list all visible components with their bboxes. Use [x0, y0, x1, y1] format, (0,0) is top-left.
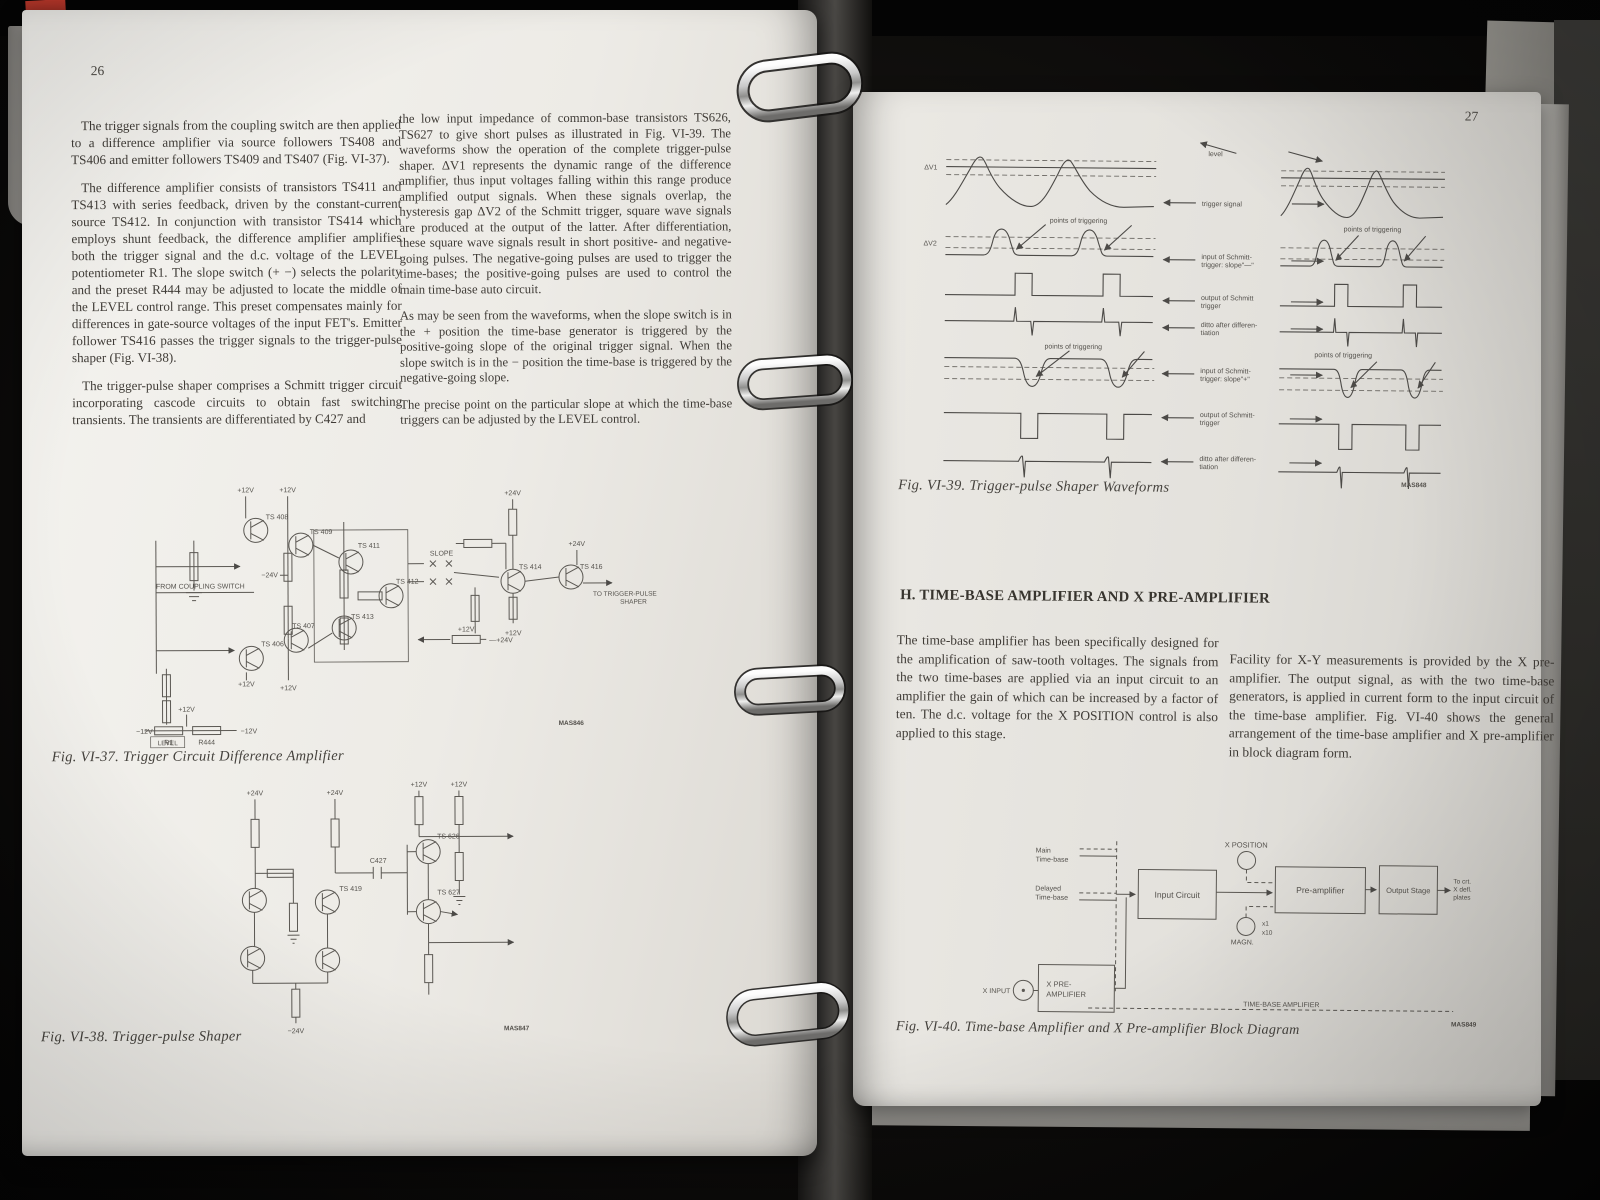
label-points-of-triggering: points of triggering [1344, 226, 1402, 234]
label-neg12: −12V [136, 729, 153, 736]
paragraph: The trigger-pulse shaper comprises a Sch… [72, 376, 402, 428]
label-ts419: TS 419 [339, 886, 362, 893]
label-supply: +12V [280, 685, 297, 692]
block-x-pre-amplifier-2: AMPLIFIER [1046, 990, 1086, 999]
label-supply: +12V [178, 707, 195, 714]
page-number: 26 [91, 63, 105, 79]
label-ts414: TS 414 [519, 564, 542, 571]
fig-39-waveforms: level trigger signal points of triggerin… [893, 124, 1456, 491]
block-output-stage: Output Stage [1386, 886, 1430, 895]
drawing-number: MAS846 [559, 720, 585, 727]
label-ts408: TS 408 [266, 514, 289, 521]
label-schmitt-output: output of Schmitt [1201, 295, 1254, 303]
paragraph: The trigger signals from the coupling sw… [71, 116, 401, 168]
fig-37-caption: Fig. VI-37. Trigger Circuit Difference A… [52, 748, 344, 766]
paragraph: The difference amplifier consists of tra… [71, 178, 402, 366]
label-to-trigger-pulse: TO TRIGGER-PULSE [593, 591, 657, 598]
label-schmitt-input-minus-2: trigger: slope"—" [1201, 262, 1254, 270]
label-main-2: Time-base [1036, 856, 1069, 863]
label-supply: +12V [238, 681, 255, 688]
label-ditto-b-2: tiation [1199, 464, 1218, 471]
fig37-wiring [144, 495, 613, 748]
paragraph: The time-base amplifier has been specifi… [896, 631, 1219, 745]
label-ditto-2: tiation [1201, 330, 1220, 337]
label-x-defl: X defl. [1453, 886, 1472, 893]
binder-ring [742, 358, 849, 405]
label-ts413: TS 413 [351, 614, 374, 621]
label-delta-v2: ΔV2 [923, 240, 936, 247]
fig-37-schematic: +12V +12V TS 408 TS 409 TS 411 TS 412 TS… [56, 476, 747, 755]
label-schmitt-input-plus: input of Schmitt- [1200, 368, 1251, 375]
label-delayed-2: Time-base [1035, 894, 1068, 901]
fig-38-caption: Fig. VI-38. Trigger-pulse Shaper [41, 1028, 242, 1046]
label-schmitt-input-minus: input of Schmitt- [1201, 254, 1252, 261]
label-supply: +24V [504, 490, 521, 497]
label-supply: +12V [451, 781, 468, 788]
drawing-number: MAS848 [1401, 482, 1427, 489]
section-heading: H. TIME-BASE AMPLIFIER AND X PRE-AMPLIFI… [900, 587, 1270, 608]
label-x-position: X POSITION [1225, 840, 1268, 849]
label-neg24: −24V [261, 572, 278, 579]
right-page: 27 [853, 92, 1541, 1106]
label-r444: R444 [198, 740, 215, 747]
label-ts626: TS 626 [437, 833, 460, 840]
waveforms-left-column [943, 157, 1156, 479]
label-schmitt-output-b: output of Schmitt- [1200, 412, 1256, 420]
label-time-base-amplifier: TIME-BASE AMPLIFIER [1243, 1001, 1319, 1009]
block-x-pre-amplifier: X PRE- [1046, 980, 1072, 989]
label-shaper: SHAPER [620, 599, 647, 606]
label-supply: +12V [279, 487, 296, 494]
fig39-labels: level trigger signal points of triggerin… [921, 148, 1430, 489]
label-supply: +24V [327, 790, 344, 797]
fig-40-block-diagram: Main Time-base Delayed Time-base Input C… [948, 790, 1495, 1033]
paragraph: The precise point on the particular slop… [400, 396, 732, 428]
label-x-input: X INPUT [983, 988, 1011, 995]
label-schmitt-output-2: trigger [1201, 303, 1222, 310]
label-from-coupling-switch: FROM COUPLING SWITCH [156, 583, 245, 590]
label-ts416: TS 416 [580, 564, 603, 571]
block-pre-amplifier: Pre-amplifier [1296, 885, 1344, 895]
binder-ring [740, 55, 859, 119]
label-points-of-triggering: points of triggering [1314, 352, 1372, 360]
label-level: level [1208, 151, 1223, 158]
label-delta-v1: ΔV1 [924, 164, 937, 171]
fig-38-schematic: +24V +24V +12V +12V C427 TS 626 TS 419 T… [197, 773, 738, 1037]
label-ditto-b: ditto after differen- [1199, 456, 1256, 464]
right-column-1: The time-base amplifier has been specifi… [896, 631, 1219, 756]
label-magn: MAGN. [1231, 939, 1254, 946]
right-column-2: Facility for X-Y measurements is provide… [1228, 650, 1554, 775]
label-supply: +24V [569, 541, 586, 548]
fig38-wiring [240, 790, 514, 1023]
label-supply: +12V [458, 626, 475, 633]
fig-39-caption: Fig. VI-39. Trigger-pulse Shaper Wavefor… [898, 477, 1169, 497]
binder-ring [730, 985, 846, 1042]
label-plates: plates [1453, 894, 1471, 901]
label-x10: x10 [1262, 930, 1273, 937]
label-supply: +12V [411, 782, 428, 789]
label-points-of-triggering: points of triggering [1050, 218, 1108, 226]
paragraph: Facility for X-Y measurements is provide… [1229, 650, 1555, 764]
label-points-of-triggering: points of triggering [1044, 344, 1102, 352]
label-neg24: −24V [288, 1028, 305, 1035]
fig40-labels: Main Time-base Delayed Time-base Input C… [982, 838, 1478, 1029]
label-ts407: TS 407 [292, 623, 315, 630]
label-c427: C427 [370, 858, 387, 865]
binder-photo: 26 The trigger signals from the coupling… [0, 0, 1600, 1200]
label-ditto: ditto after differen- [1201, 322, 1258, 330]
label-supply: —+24V [489, 637, 513, 644]
page-number: 27 [1465, 109, 1479, 125]
label-level: LEVEL [158, 740, 179, 747]
label-ts412: TS 412 [396, 579, 419, 586]
label-x1: x1 [1262, 921, 1269, 928]
drawing-number: MAS847 [504, 1025, 530, 1032]
binder-rings [700, 0, 920, 1200]
drawing-number: MAS849 [1451, 1021, 1477, 1028]
label-supply: +12V [505, 630, 522, 637]
paragraph: the low input impedance of common-base t… [399, 110, 732, 297]
fig-40-caption: Fig. VI-40. Time-base Amplifier and X Pr… [896, 1019, 1300, 1039]
left-column-1: The trigger signals from the coupling sw… [71, 116, 402, 439]
label-ts409: TS 409 [310, 529, 333, 536]
label-neg12: −12V [241, 728, 258, 735]
label-ts406: TS 406 [261, 641, 284, 648]
paragraph: As may be seen from the waveforms, when … [400, 307, 732, 386]
label-schmitt-output-b-2: trigger [1200, 420, 1221, 427]
binder-ring [739, 669, 841, 710]
label-delayed: Delayed [1035, 885, 1061, 892]
label-supply: +12V [237, 487, 254, 494]
label-to-crt: To crt. [1453, 878, 1471, 885]
block-input-circuit: Input Circuit [1155, 890, 1201, 900]
left-column-2: the low input impedance of common-base t… [399, 110, 732, 439]
left-page: 26 The trigger signals from the coupling… [22, 10, 817, 1156]
label-main: Main [1036, 847, 1051, 854]
label-schmitt-input-plus-2: trigger: slope"+" [1200, 376, 1250, 383]
label-ts411: TS 411 [358, 543, 380, 550]
label-slope: SLOPE [430, 551, 454, 558]
label-ts627: TS 627 [437, 889, 460, 896]
label-trigger-signal: trigger signal [1202, 201, 1243, 208]
label-supply: +24V [247, 790, 264, 797]
fig37-labels: +12V +12V TS 408 TS 409 TS 411 TS 412 TS… [135, 486, 658, 748]
